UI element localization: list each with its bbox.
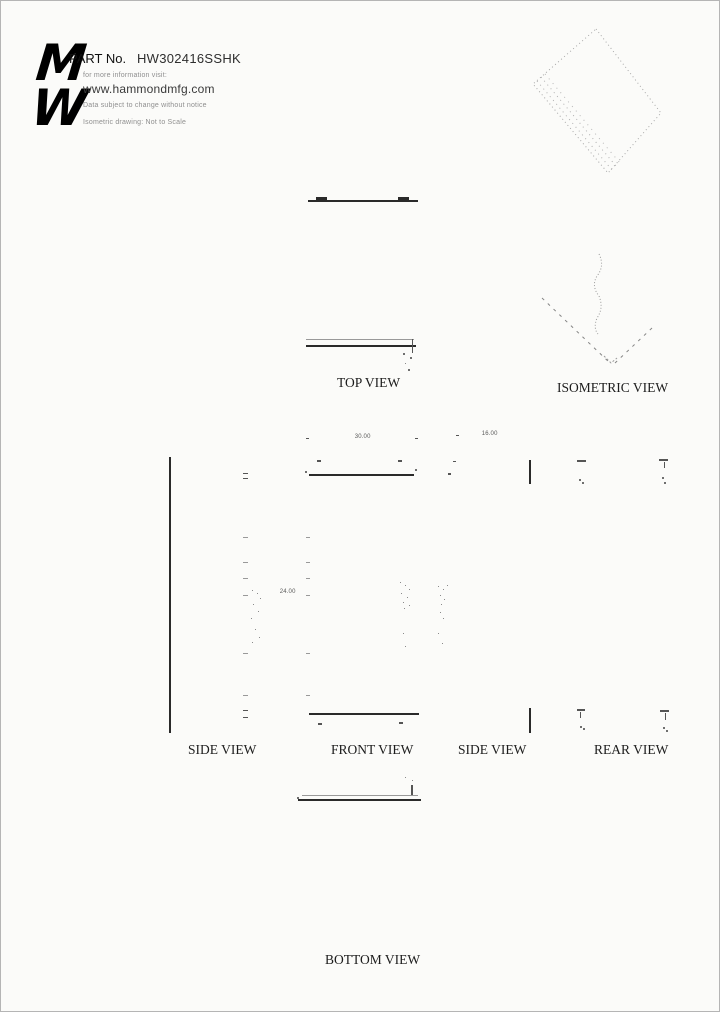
scale-note: Isometric drawing: Not to Scale (83, 119, 186, 126)
sideview-right-label: SIDE VIEW (458, 742, 526, 759)
front-lifting-eye-left (317, 460, 321, 462)
sideview-left-label: SIDE VIEW (188, 742, 256, 759)
rearview-left-edge-bottom (529, 708, 531, 733)
rear-bracket-top-right (659, 459, 668, 461)
drawing-sheet: M W PART No. HW302416SSHK for more infor… (0, 0, 720, 1012)
topview-tab-right (398, 197, 409, 201)
height-dimension: 24.00 (280, 588, 296, 594)
topview-tab-left (316, 197, 327, 201)
topview-step (412, 339, 413, 353)
part-number: HW302416SSHK (137, 51, 241, 66)
frontview-top-edge (309, 474, 414, 476)
bottomview-label: BOTTOM VIEW (325, 952, 420, 969)
rear-bracket-top-left (577, 460, 586, 462)
sideview-left-edge (169, 457, 171, 733)
rearview-left-edge-top (529, 460, 531, 484)
frontview-label: FRONT VIEW (331, 742, 413, 759)
disclaimer-note: Data subject to change without notice (83, 102, 207, 109)
frontview-bottom-edge (309, 713, 419, 715)
topview-front-edge-faint (306, 339, 414, 340)
topview-front-edge (306, 345, 416, 347)
rear-bracket-bottom-right (660, 710, 669, 712)
website-link[interactable]: www.hammondmfg.com (83, 82, 215, 96)
logo-letter-bottom: W (29, 86, 74, 131)
bottomview-edge-faint (302, 795, 418, 796)
info-note: for more information visit: (83, 72, 167, 79)
rear-bracket-bottom-left (577, 709, 585, 711)
front-lifting-eye-right (398, 460, 402, 462)
bottomview-edge (298, 799, 421, 801)
part-number-line: PART No. HW302416SSHK (69, 51, 241, 66)
width-dimension: 30.00 (355, 433, 371, 439)
isometric-label: ISOMETRIC VIEW (557, 380, 668, 397)
topview-label: TOP VIEW (337, 375, 400, 392)
depth-dimension: 16.00 (482, 430, 498, 436)
isometric-panel-sketch (526, 16, 696, 186)
part-label: PART No. (69, 51, 126, 66)
rearview-label: REAR VIEW (594, 742, 668, 759)
